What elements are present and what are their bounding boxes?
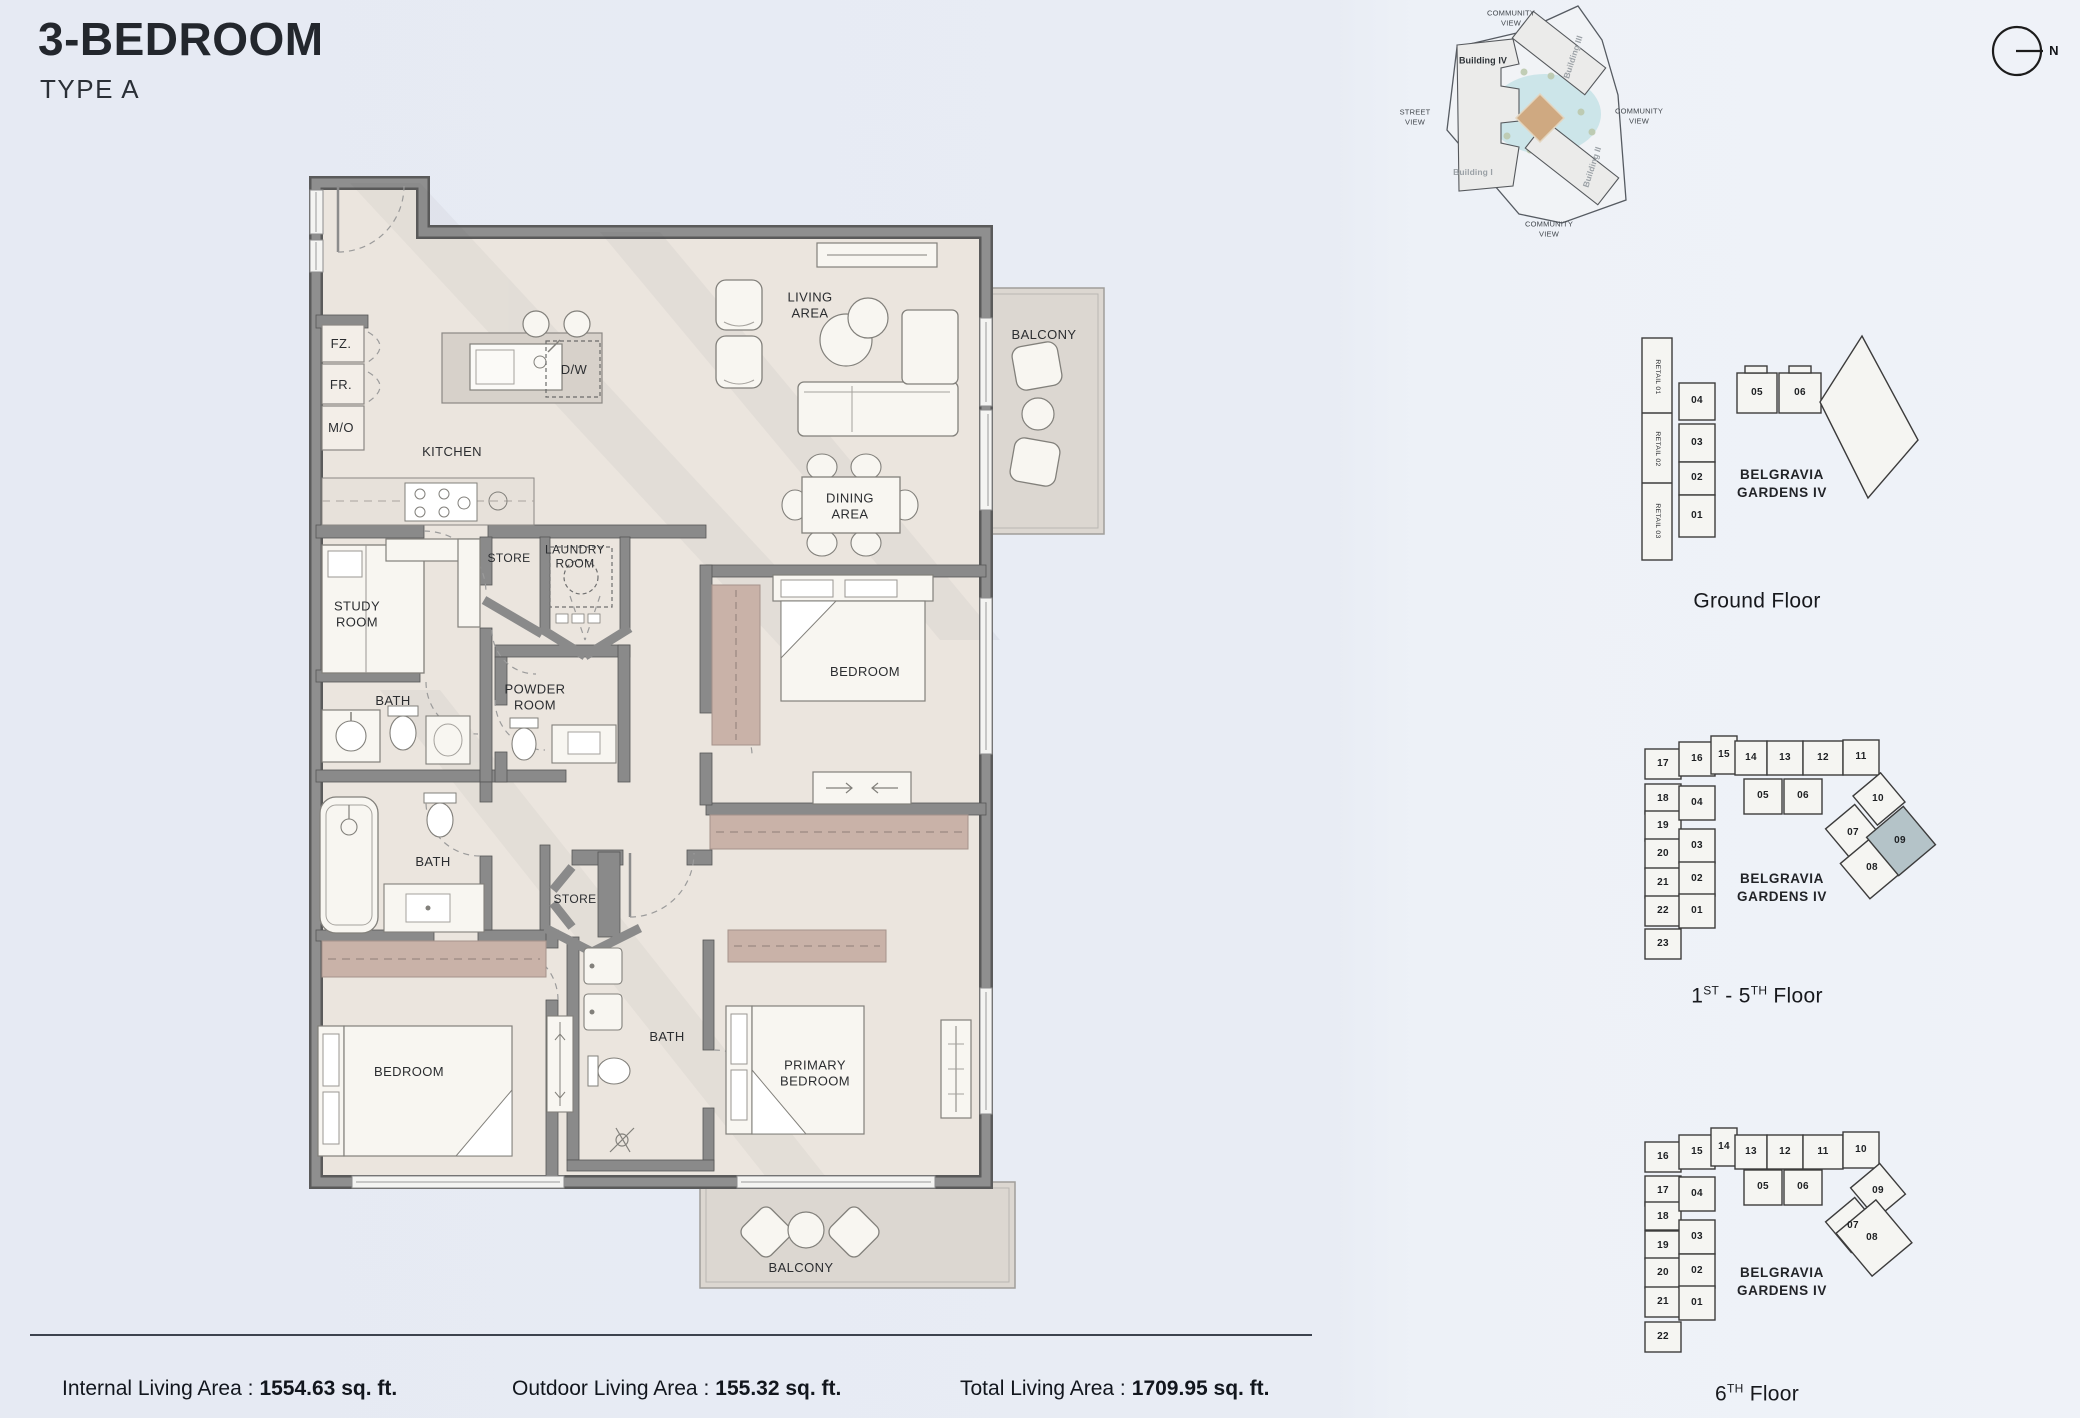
unit-label: 07	[1847, 1220, 1859, 1232]
unit-label-highlighted: 09	[1894, 835, 1906, 847]
label-fridge: FR.	[330, 377, 352, 393]
unit-label: 16	[1691, 753, 1703, 765]
floor-plan-drawing	[310, 183, 1104, 1288]
unit-label: 02	[1691, 1265, 1703, 1277]
label-community-view-top: COMMUNITY VIEW	[1487, 8, 1535, 28]
label-bedroom-left: BEDROOM	[374, 1064, 444, 1080]
label-kitchen: KITCHEN	[422, 444, 482, 460]
stat-value: 155.32 sq. ft.	[715, 1377, 841, 1400]
unit-label: 01	[1691, 905, 1703, 917]
label-dining-area: DINING AREA	[826, 490, 874, 521]
unit-label: 09	[1872, 1185, 1884, 1197]
stat-label: Outdoor Living Area :	[512, 1377, 709, 1400]
label-living-area: LIVING AREA	[787, 289, 832, 320]
unit-label: 11	[1817, 1146, 1828, 1158]
unit-label: 04	[1691, 1188, 1703, 1200]
label-freezer: FZ.	[331, 336, 352, 352]
stat-value: 1709.95 sq. ft.	[1132, 1377, 1270, 1400]
unit-label: 06	[1794, 387, 1806, 399]
unit-label: 17	[1657, 758, 1669, 770]
unit-label: 15	[1718, 749, 1730, 761]
unit-label: 05	[1751, 387, 1763, 399]
label-bath-2: BATH	[415, 854, 450, 870]
compass-north-label: N	[2049, 43, 2059, 59]
unit-label: 05	[1757, 790, 1769, 802]
unit-label: 16	[1657, 1151, 1669, 1163]
label-laundry-room: LAUNDRY ROOM	[545, 543, 605, 572]
unit-label: 14	[1745, 752, 1757, 764]
building-name-floors-1-5: BELGRAVIA GARDENS IV	[1737, 870, 1827, 906]
unit-label: 22	[1657, 905, 1669, 917]
unit-label: 21	[1657, 877, 1669, 889]
label-balcony-primary: BALCONY	[769, 1260, 834, 1276]
key-plan-title-floors-1-5: 1ST - 5TH Floor	[1691, 983, 1823, 1008]
unit-label: 01	[1691, 510, 1703, 522]
stat-total-living-area: Total Living Area :1709.95 sq. ft.	[960, 1377, 1270, 1401]
page-title: 3-BEDROOM	[38, 12, 324, 66]
building-name-floor-6: BELGRAVIA GARDENS IV	[1737, 1264, 1827, 1300]
label-bath-1: BATH	[375, 693, 410, 709]
unit-label: 03	[1691, 437, 1703, 449]
stat-label: Internal Living Area :	[62, 1377, 253, 1400]
unit-label: 02	[1691, 472, 1703, 484]
label-study-room: STUDY ROOM	[334, 598, 380, 629]
unit-label: 10	[1872, 793, 1884, 805]
key-plan-title-ground: Ground Floor	[1693, 588, 1820, 613]
unit-label: 06	[1797, 1181, 1809, 1193]
unit-label: 21	[1657, 1296, 1669, 1308]
unit-label: 07	[1847, 827, 1859, 839]
unit-label: 13	[1779, 752, 1791, 764]
label-primary-bedroom: PRIMARY BEDROOM	[780, 1057, 850, 1088]
label-microwave-oven: M/O	[328, 420, 354, 436]
unit-label: 06	[1797, 790, 1809, 802]
page-subtitle: TYPE A	[40, 74, 140, 105]
unit-label: 04	[1691, 797, 1703, 809]
unit-label: 14	[1718, 1141, 1730, 1153]
label-dishwasher: D/W	[561, 362, 587, 378]
label-retail-01: RETAIL 01	[1653, 359, 1661, 394]
label-community-view-right: COMMUNITY VIEW	[1615, 106, 1663, 126]
stat-internal-living-area: Internal Living Area :1554.63 sq. ft.	[62, 1377, 397, 1401]
label-retail-03: RETAIL 03	[1653, 503, 1661, 538]
unit-label: 08	[1866, 1232, 1878, 1244]
unit-label: 19	[1657, 820, 1669, 832]
unit-label: 01	[1691, 1297, 1703, 1309]
stat-outdoor-living-area: Outdoor Living Area :155.32 sq. ft.	[512, 1377, 841, 1401]
building-name-ground: BELGRAVIA GARDENS IV	[1737, 466, 1827, 502]
label-store-2: STORE	[553, 892, 596, 906]
unit-label: 05	[1757, 1181, 1769, 1193]
site-map-drawing	[1447, 6, 2043, 223]
brochure-page: 3-BEDROOM TYPE A FZ. FR. M/O KITCHEN D/W…	[0, 0, 2080, 1418]
label-balcony-living: BALCONY	[1012, 327, 1077, 343]
label-building-i: Building I	[1453, 167, 1493, 177]
unit-label: 04	[1691, 395, 1703, 407]
page-drawing	[0, 0, 2080, 1418]
compass-icon	[1993, 27, 2043, 75]
unit-label: 02	[1691, 873, 1703, 885]
unit-label: 11	[1855, 751, 1866, 763]
unit-label: 18	[1657, 1211, 1669, 1223]
unit-label: 10	[1855, 1144, 1867, 1156]
stat-value: 1554.63 sq. ft.	[259, 1377, 397, 1400]
unit-label: 12	[1779, 1146, 1791, 1158]
unit-label: 19	[1657, 1240, 1669, 1252]
unit-label: 03	[1691, 1231, 1703, 1243]
unit-label: 03	[1691, 840, 1703, 852]
label-street-view: STREET VIEW	[1400, 107, 1431, 127]
unit-label: 20	[1657, 848, 1669, 860]
label-store-1: STORE	[487, 551, 530, 565]
stat-label: Total Living Area :	[960, 1377, 1126, 1400]
key-plan-ground-drawing	[1642, 336, 1918, 560]
stats-divider	[30, 1334, 1312, 1336]
unit-label: 15	[1691, 1146, 1703, 1158]
unit-label: 22	[1657, 1331, 1669, 1343]
label-bath-3: BATH	[649, 1029, 684, 1045]
unit-label: 12	[1817, 752, 1829, 764]
unit-label: 17	[1657, 1185, 1669, 1197]
unit-label: 23	[1657, 938, 1669, 950]
label-powder-room: POWDER ROOM	[505, 681, 566, 712]
label-bedroom-mid: BEDROOM	[830, 664, 900, 680]
unit-label: 20	[1657, 1267, 1669, 1279]
label-building-iv: Building IV	[1459, 56, 1507, 67]
unit-label: 18	[1657, 793, 1669, 805]
unit-label: 13	[1745, 1146, 1757, 1158]
key-plan-title-floor-6: 6TH Floor	[1715, 1381, 1799, 1406]
key-plan-floors-1-5-drawing	[1645, 736, 1935, 959]
label-community-view-bottom: COMMUNITY VIEW	[1525, 219, 1573, 239]
label-retail-02: RETAIL 02	[1653, 431, 1661, 466]
unit-label: 08	[1866, 862, 1878, 874]
